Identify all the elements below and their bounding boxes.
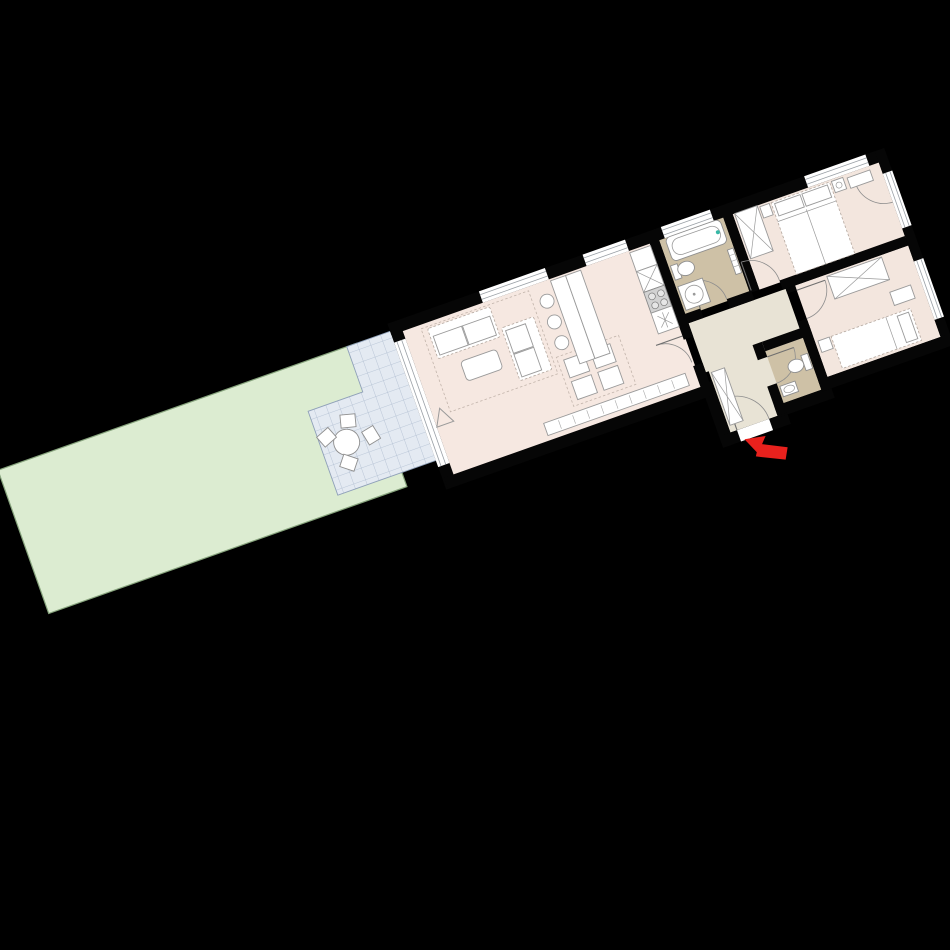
- terrace-chair: [340, 414, 356, 428]
- floor-plan-svg: Garden Terrace: [0, 0, 950, 950]
- floor-plan-canvas: Garden Terrace: [0, 0, 950, 950]
